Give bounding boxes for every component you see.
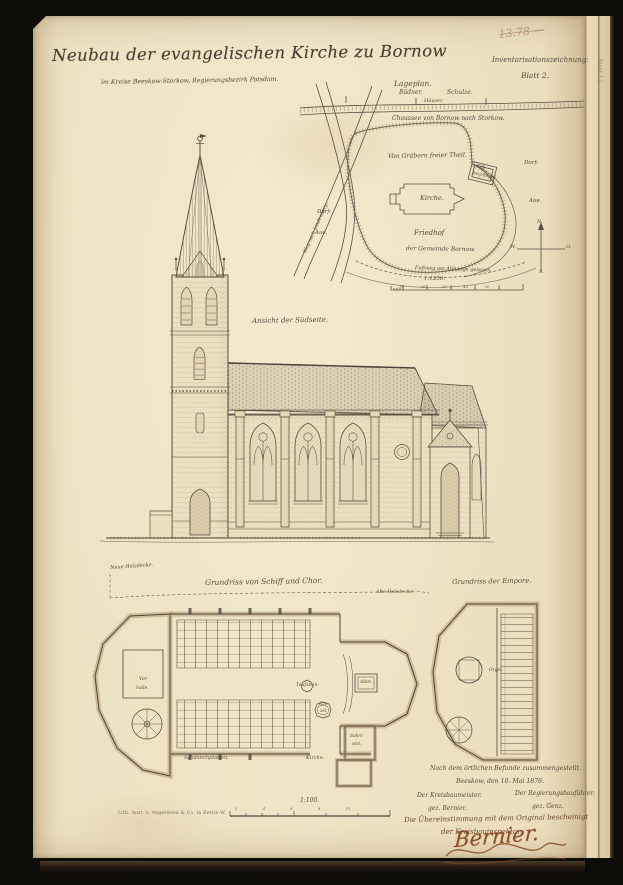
- compass-label-s: S.: [539, 270, 544, 275]
- nave-plan-label-sakristei-2: stei.: [352, 743, 361, 748]
- siteplan-label-schulze: Schulze.: [447, 90, 473, 96]
- doc-type-line: Inventarisationszeichnung:: [492, 57, 588, 64]
- compass-label-n: N.: [537, 220, 543, 225]
- empore-plan-title: Grundriss der Empore.: [452, 578, 532, 587]
- nave-plan-label-taufstein: Taufstein.: [296, 684, 319, 689]
- elevation-caption: Ansicht der Südseite.: [252, 317, 328, 326]
- page-edge-3: [598, 16, 610, 858]
- plan-pew-banks: [177, 620, 310, 748]
- siteplan-title: Lageplan.: [394, 80, 432, 88]
- elevation-nave: [226, 363, 440, 538]
- siteplan-label-aue-right: Aue.: [529, 199, 542, 205]
- elevation-spire: [175, 134, 226, 277]
- church-elevation-drawing: [80, 125, 500, 560]
- nave-plan-label-vorhalle-1: Vor-: [139, 678, 148, 683]
- nave-plan-label-altar: Altar.: [360, 681, 372, 686]
- empore-spiral-stair: [446, 717, 472, 743]
- empore-plan-drawing: [425, 568, 560, 783]
- page-corner-cut: [33, 16, 46, 29]
- edge-handwriting: Blatt 13.: [596, 58, 602, 84]
- empore-organ: [456, 657, 482, 683]
- siteplan-label-haeuser: Häuser.: [424, 99, 444, 104]
- printer-imprint: Lith. Anst. v. Angerstein & Co. in Berli…: [118, 812, 226, 817]
- footer-attest-line2: Beeskow, den 10. Mai 1876.: [456, 779, 544, 786]
- page-edge-shadow: [610, 16, 614, 858]
- compass-icon: [517, 222, 565, 272]
- nave-plan-label-bodenbelag: Sandsteinplatten.: [184, 756, 229, 761]
- nave-plan-scale-ticks: 2 4 6 8 10: [235, 807, 350, 811]
- page-edge-2: [585, 16, 598, 858]
- nave-plan-label-sakristei-1: Sakri-: [350, 735, 363, 740]
- nave-plan-label-alte-decke: Alte Holzdecke.: [376, 590, 414, 595]
- nave-plan-label-kirche: Kirche.: [306, 756, 324, 761]
- siteplan-label-budner: Büdner.: [399, 90, 423, 96]
- empore-benches: [501, 614, 533, 754]
- empore-plan-label-orgel: Orgel.: [489, 669, 503, 674]
- siteplan-label-dorf-right: Dorf-: [524, 161, 538, 167]
- signature-flourish: [440, 836, 570, 866]
- nave-plan-label-vorhalle-2: halle.: [136, 687, 149, 692]
- scanned-drawing-sheet: 13.78 — Inventarisationszeichnung: Blatt…: [0, 0, 623, 885]
- compass-label-o: O.: [566, 245, 571, 250]
- footer-role-left: Der Kreisbaumeister.: [417, 793, 482, 799]
- footer-sig-right: gez. Genz.: [532, 804, 564, 810]
- nave-plan-scale-label: 1:100.: [300, 798, 319, 804]
- footer-role-right: Der Regierungsbauführer.: [515, 791, 595, 797]
- nave-plan-label-kanzel-2: zel.: [320, 710, 328, 715]
- compass-label-w: W.: [510, 245, 516, 250]
- siteplan-label-road: Chaussee von Bornow nach Storkow.: [392, 116, 504, 122]
- footer-attest-line1: Nach dem örtlichen Befunde zusammengeste…: [430, 766, 581, 773]
- nave-plan-label-kanzel-1: Kan-: [319, 703, 329, 708]
- elevation-tower: [170, 275, 230, 538]
- footer-sig-left: gez. Bernier.: [428, 806, 467, 812]
- plan-vorhalle: [123, 650, 163, 739]
